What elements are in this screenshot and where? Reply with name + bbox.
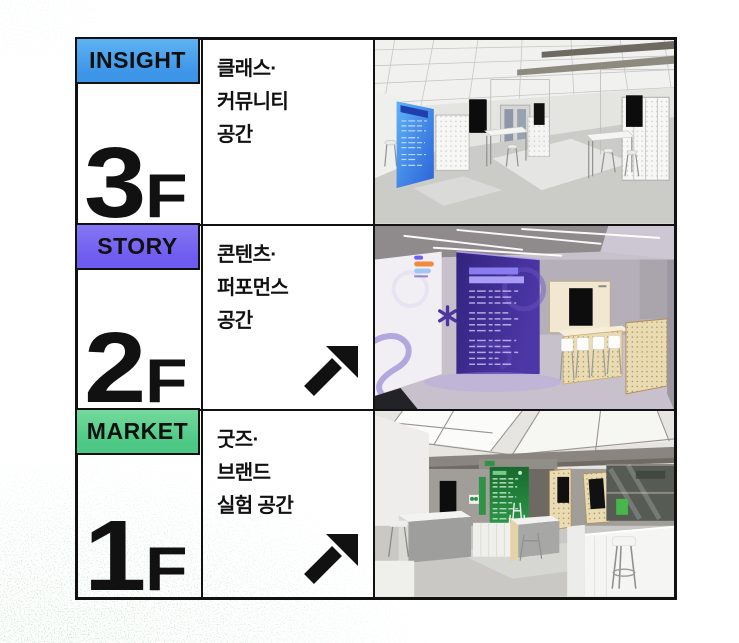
floor-guide-poster: INSIGHT 3F 클래스· 커뮤니티 공간 [0, 0, 739, 643]
floor-1f-category-cell: MARKET 1F [78, 411, 203, 597]
floor-1f-render [375, 411, 674, 597]
insight-badge: INSIGHT [75, 37, 200, 84]
floor-2f-category-cell: STORY 2F [78, 226, 203, 412]
northeast-arrow-icon [309, 534, 358, 579]
floor-3f-number: 3F [84, 144, 184, 222]
northeast-arrow-icon [309, 346, 358, 391]
story-badge: STORY [75, 223, 200, 270]
floor-2f-link-arrow[interactable] [304, 346, 358, 396]
floor-2f-number: 2F [84, 329, 184, 407]
floor-2f-render [375, 226, 674, 410]
market-badge: MARKET [75, 408, 200, 455]
floor-1f-number: 1F [84, 517, 184, 595]
floor-1f-description-cell: 굿즈· 브랜드 실험 공간 [203, 411, 375, 597]
floor-3f-description: 클래스· 커뮤니티 공간 [203, 40, 373, 152]
floor-1f-link-arrow[interactable] [304, 534, 358, 584]
floor-3f-render [375, 40, 674, 224]
floor-3f-image-cell [375, 40, 674, 226]
floor-2f-description-cell: 콘텐츠· 퍼포먼스 공간 [203, 226, 375, 412]
floor-1f-description: 굿즈· 브랜드 실험 공간 [203, 411, 373, 523]
story-badge-label: STORY [97, 233, 177, 260]
floor-1f-image-cell [375, 411, 674, 597]
floor-2f-image-cell [375, 226, 674, 412]
floor-3f-description-cell: 클래스· 커뮤니티 공간 [203, 40, 375, 226]
floor-3f-category-cell: INSIGHT 3F [78, 40, 203, 226]
market-badge-label: MARKET [87, 418, 188, 445]
floor-directory-table: INSIGHT 3F 클래스· 커뮤니티 공간 [75, 37, 677, 600]
floor-2f-description: 콘텐츠· 퍼포먼스 공간 [203, 226, 373, 338]
insight-badge-label: INSIGHT [89, 47, 186, 74]
